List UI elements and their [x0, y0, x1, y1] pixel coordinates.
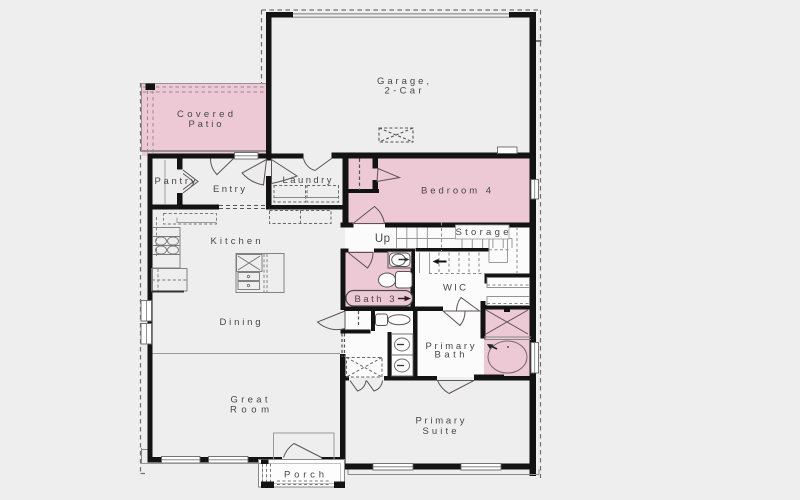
svg-text:Up: Up	[375, 233, 391, 245]
svg-text:Patio: Patio	[189, 119, 222, 130]
svg-text:Bath: Bath	[435, 350, 465, 361]
svg-text:Entry: Entry	[213, 184, 245, 195]
svg-text:Bedroom 4: Bedroom 4	[421, 186, 491, 197]
svg-text:Suite: Suite	[423, 426, 457, 437]
svg-text:WIC: WIC	[443, 283, 466, 294]
svg-text:Porch: Porch	[284, 470, 324, 481]
